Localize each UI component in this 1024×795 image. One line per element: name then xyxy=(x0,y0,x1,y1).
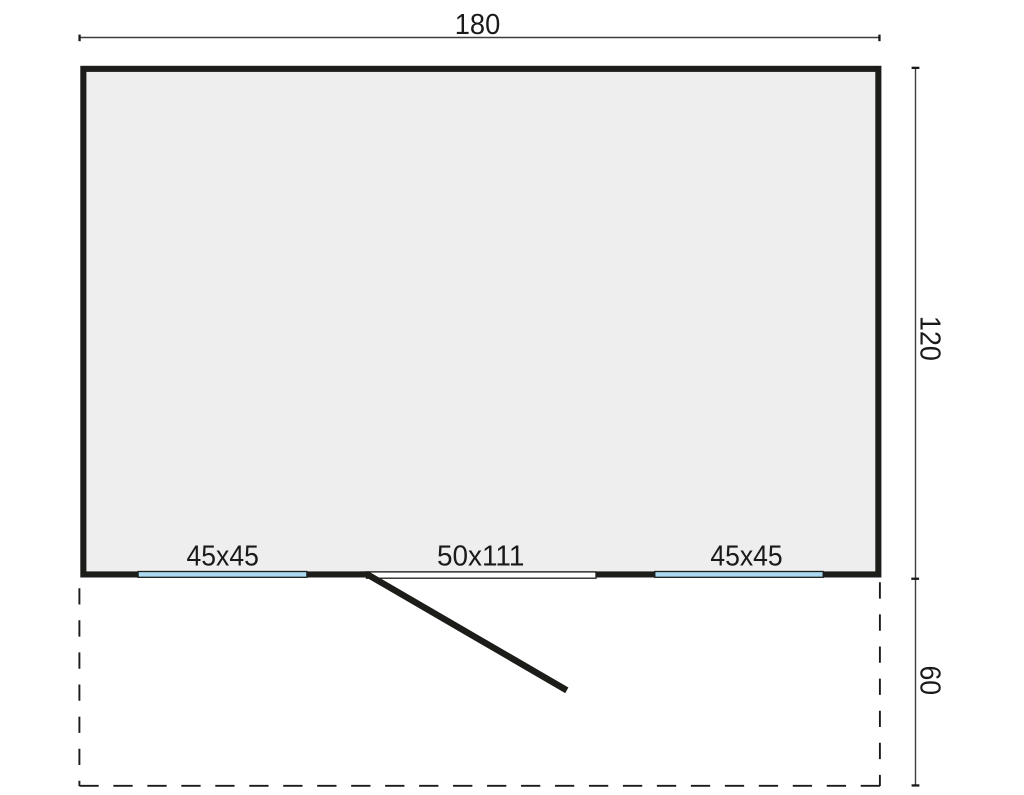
svg-text:50x111: 50x111 xyxy=(437,541,525,573)
svg-text:45x45: 45x45 xyxy=(710,541,782,573)
svg-text:60: 60 xyxy=(914,665,946,695)
svg-text:120: 120 xyxy=(914,316,946,361)
svg-text:180: 180 xyxy=(455,9,501,41)
svg-text:45x45: 45x45 xyxy=(187,541,259,573)
